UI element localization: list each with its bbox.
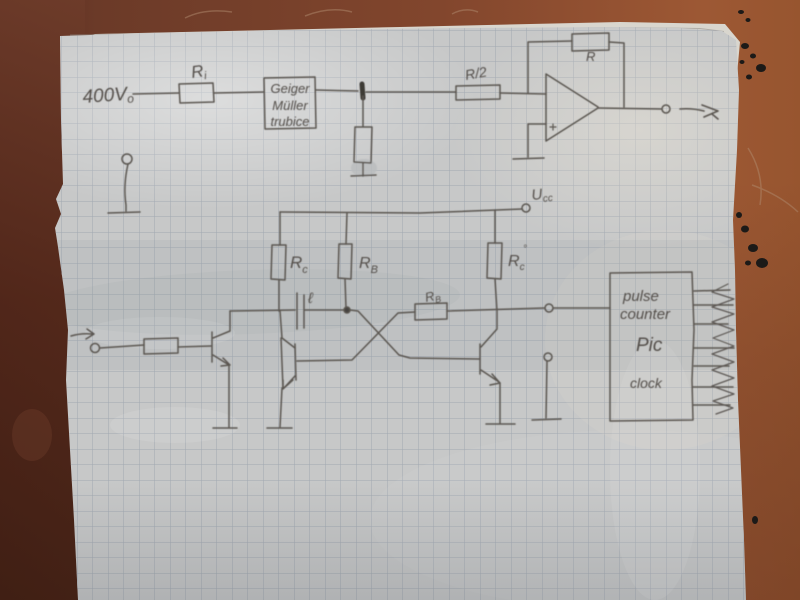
svg-text:trubice: trubice <box>270 114 309 129</box>
svg-text:clock: clock <box>630 375 663 391</box>
svg-text:Müller: Müller <box>272 98 308 113</box>
svg-text:Geiger: Geiger <box>270 81 310 96</box>
svg-text:counter: counter <box>620 306 671 323</box>
svg-text:R: R <box>586 49 595 64</box>
svg-text:pulse: pulse <box>622 288 659 305</box>
svg-text:Pic: Pic <box>636 335 663 356</box>
svg-text:°: ° <box>523 244 527 255</box>
